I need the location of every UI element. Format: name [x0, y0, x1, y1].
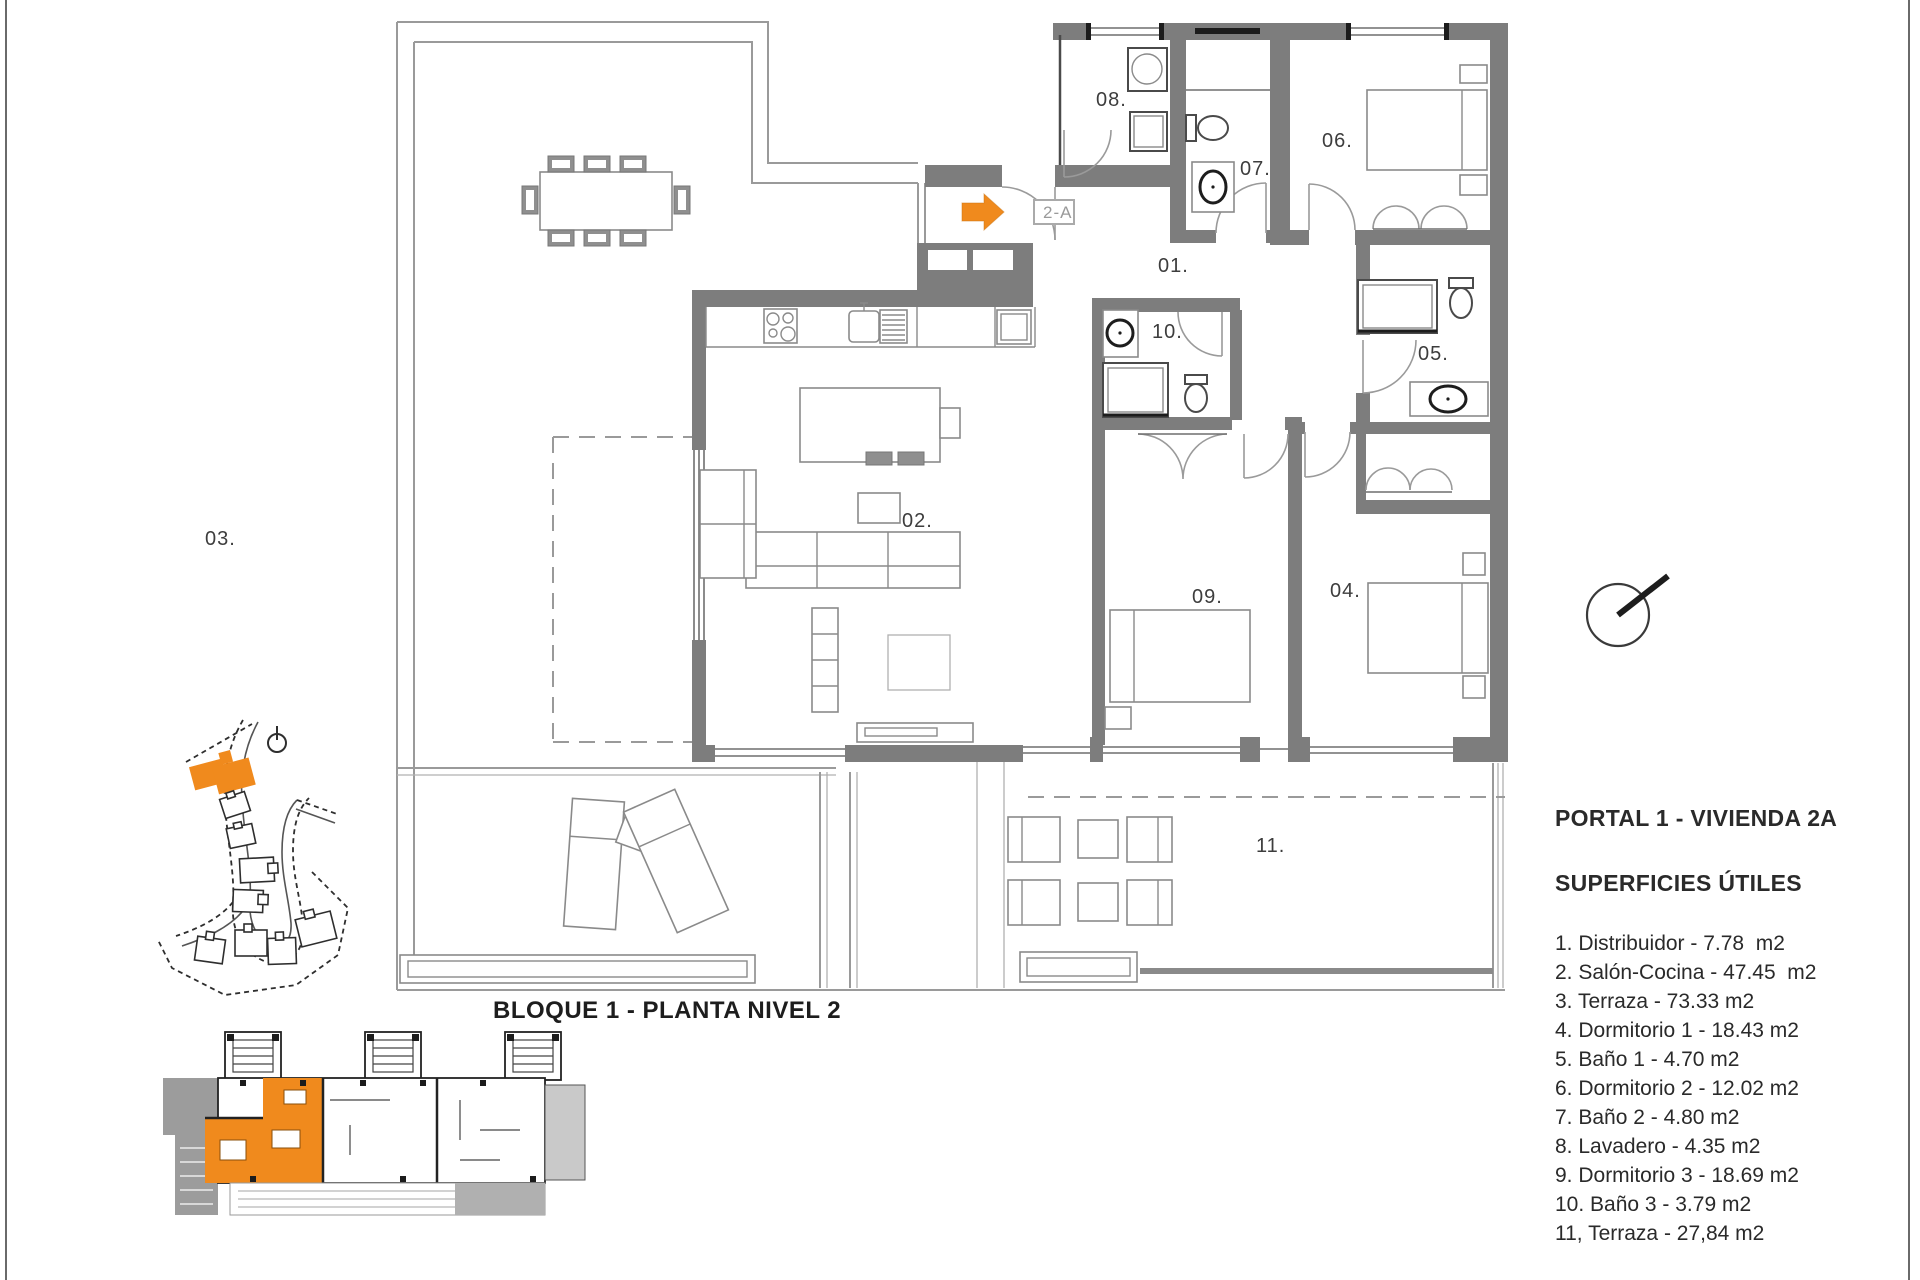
legend-list: 1. Distribuidor - 7.78 m2 2. Salón-Cocin…	[1555, 929, 1915, 1248]
legend-item: 10. Baño 3 - 3.79 m2	[1555, 1190, 1915, 1219]
planter-boxes	[400, 952, 1137, 983]
tv-console	[857, 723, 973, 742]
legend-item: 2. Salón-Cocina - 47.45 m2	[1555, 958, 1915, 987]
loungers	[564, 789, 729, 932]
room-label-03: 03.	[205, 528, 236, 550]
room-labels: 01. 02. 03. 04. 05. 06. 07. 08. 09. 10. …	[205, 89, 1449, 857]
kitchen-sink	[849, 303, 879, 342]
room-label-05: 05.	[1418, 343, 1449, 365]
closet-doors-09	[1138, 434, 1227, 479]
sofa-large	[746, 532, 960, 588]
legend-item: 5. Baño 1 - 4.70 m2	[1555, 1045, 1915, 1074]
closet-doors	[1373, 206, 1467, 229]
room-label-10: 10.	[1152, 321, 1183, 343]
stair-towers	[225, 1032, 561, 1080]
window-top-bedroom06	[1346, 23, 1449, 40]
legend-item: 3. Terraza - 73.33 m2	[1555, 987, 1915, 1016]
terrace-11-furniture	[1008, 817, 1172, 925]
dishwasher	[880, 310, 907, 343]
fridge	[997, 310, 1031, 344]
bathroom-2	[1186, 90, 1270, 212]
legend-title: SUPERFICIES ÚTILES	[1555, 870, 1915, 897]
legend-item: 1. Distribuidor - 7.78 m2	[1555, 929, 1915, 958]
legend-item: 6. Dormitorio 2 - 12.02 m2	[1555, 1074, 1915, 1103]
closet-niche	[1366, 468, 1452, 492]
sofa-small	[700, 470, 756, 578]
site-map-houses	[194, 788, 336, 965]
legend-item: 9. Dormitorio 3 - 18.69 m2	[1555, 1161, 1915, 1190]
dining-set	[522, 156, 690, 246]
bedroom-2	[1367, 65, 1487, 229]
kitchen-island	[800, 388, 960, 465]
window-top-laundry	[1086, 23, 1164, 40]
legend-item: 7. Baño 2 - 4.80 m2	[1555, 1103, 1915, 1132]
unit-title: PORTAL 1 - VIVIENDA 2A	[1555, 805, 1915, 832]
room-label-09: 09.	[1192, 586, 1223, 608]
floorplan-page: 2-A 01. 02. 03. 04. 05. 06. 07. 08. 09. …	[0, 0, 1920, 1280]
room-label-11: 11.	[1256, 835, 1285, 857]
room-label-07: 07.	[1240, 158, 1271, 180]
bedroom-1	[1368, 553, 1488, 698]
laundry-room	[1128, 48, 1167, 151]
shelf-unit	[812, 608, 838, 712]
coffee-table	[858, 493, 900, 523]
plan-title: BLOQUE 1 - PLANTA NIVEL 2	[493, 997, 841, 1025]
legend-item: 4. Dormitorio 1 - 18.43 m2	[1555, 1016, 1915, 1045]
entry-cabinet	[917, 243, 1033, 290]
legend-item: 8. Lavadero - 4.35 m2	[1555, 1132, 1915, 1161]
room-label-01: 01.	[1158, 255, 1189, 277]
room-label-08: 08.	[1096, 89, 1127, 111]
legend-block: PORTAL 1 - VIVIENDA 2A SUPERFICIES ÚTILE…	[1555, 805, 1915, 1248]
kitchen	[706, 303, 1035, 465]
building-thumbnail	[163, 1032, 585, 1215]
site-map	[158, 720, 348, 995]
room-label-04: 04.	[1330, 580, 1361, 602]
unit-tag: 2-A	[1034, 200, 1074, 224]
window-mark-top	[1195, 28, 1260, 34]
compass-icon	[1587, 576, 1668, 646]
entrance-arrow-icon	[962, 194, 1004, 230]
unit-tag-label: 2-A	[1043, 203, 1072, 222]
room-label-06: 06.	[1322, 130, 1353, 152]
north-icon	[268, 726, 286, 752]
cooktop	[764, 309, 797, 343]
bedroom-3	[1105, 434, 1250, 729]
slider-bottom-living	[715, 749, 845, 756]
room-label-02: 02.	[902, 510, 933, 532]
rug	[888, 635, 950, 690]
legend-item: 11, Terraza - 27,84 m2	[1555, 1219, 1915, 1248]
